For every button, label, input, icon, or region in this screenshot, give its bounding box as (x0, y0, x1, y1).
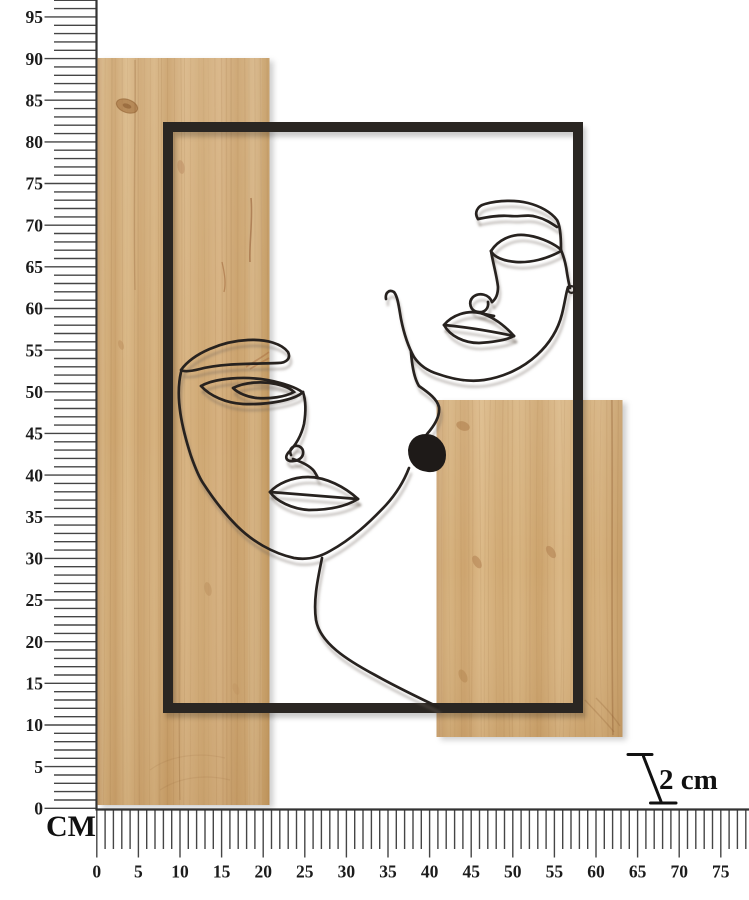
svg-text:50: 50 (26, 382, 44, 402)
svg-text:40: 40 (421, 862, 439, 882)
svg-text:25: 25 (296, 862, 314, 882)
svg-text:45: 45 (462, 862, 480, 882)
svg-text:50: 50 (504, 862, 522, 882)
svg-text:60: 60 (26, 299, 44, 319)
svg-text:20: 20 (26, 632, 44, 652)
svg-text:15: 15 (213, 862, 231, 882)
svg-text:0: 0 (92, 862, 101, 882)
svg-text:10: 10 (171, 862, 189, 882)
svg-text:35: 35 (379, 862, 397, 882)
svg-text:30: 30 (338, 862, 356, 882)
svg-text:80: 80 (26, 132, 44, 152)
svg-text:55: 55 (26, 340, 44, 360)
svg-text:CM: CM (46, 810, 96, 843)
svg-text:85: 85 (26, 91, 44, 111)
svg-text:35: 35 (26, 507, 44, 527)
svg-text:60: 60 (587, 862, 605, 882)
svg-text:5: 5 (134, 862, 143, 882)
svg-text:45: 45 (26, 424, 44, 444)
svg-text:15: 15 (26, 674, 44, 694)
svg-text:65: 65 (26, 257, 44, 277)
svg-text:65: 65 (629, 862, 647, 882)
svg-text:5: 5 (34, 757, 43, 777)
svg-text:10: 10 (26, 715, 44, 735)
svg-text:70: 70 (670, 862, 688, 882)
svg-text:2 cm: 2 cm (659, 764, 718, 796)
svg-text:95: 95 (26, 7, 44, 27)
svg-text:75: 75 (26, 174, 44, 194)
svg-text:0: 0 (34, 799, 43, 819)
svg-text:20: 20 (254, 862, 272, 882)
svg-text:70: 70 (26, 215, 44, 235)
svg-text:55: 55 (546, 862, 564, 882)
svg-text:30: 30 (26, 549, 44, 569)
svg-text:75: 75 (712, 862, 730, 882)
svg-text:25: 25 (26, 590, 44, 610)
svg-text:90: 90 (26, 49, 44, 69)
svg-text:40: 40 (26, 465, 44, 485)
